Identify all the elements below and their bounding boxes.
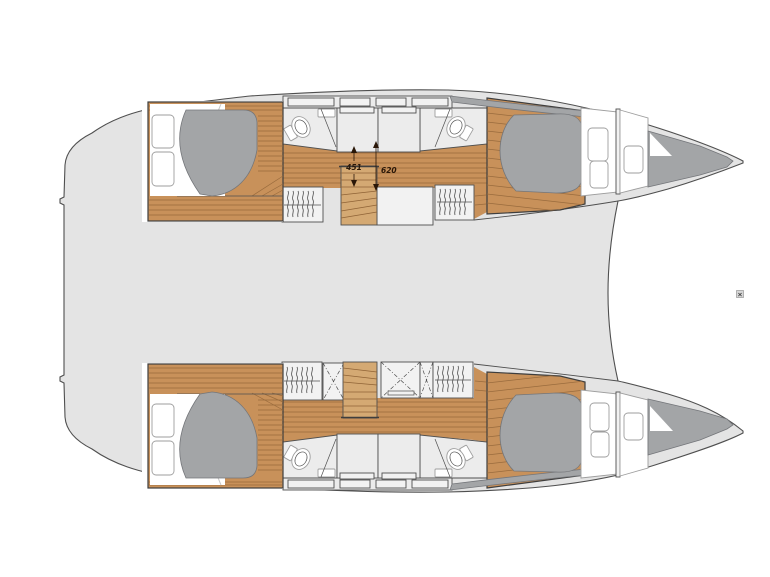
wardrobe-bottom-right bbox=[433, 362, 473, 398]
shower-top-right bbox=[378, 108, 420, 152]
bottom-hull bbox=[142, 362, 733, 490]
sink-bottom-left bbox=[318, 469, 335, 477]
shower-door-bottom-left bbox=[340, 473, 374, 479]
floorplan-svg: 451 620 bbox=[0, 0, 770, 577]
crossed-storage-box-small bbox=[323, 363, 344, 400]
shower-top-left bbox=[337, 108, 378, 152]
hull-window bbox=[590, 403, 609, 431]
bed-mattress bbox=[500, 114, 582, 193]
pillow bbox=[152, 152, 174, 186]
hull-window bbox=[624, 413, 643, 440]
dimension-label-451: 451 bbox=[346, 163, 362, 172]
bulkhead bbox=[616, 392, 620, 477]
pillow bbox=[152, 404, 174, 437]
hull-window bbox=[591, 432, 609, 457]
stairs-bottom bbox=[341, 362, 379, 418]
shower-bottom-left bbox=[337, 434, 378, 478]
bulkhead bbox=[616, 109, 620, 194]
pillow bbox=[152, 441, 174, 475]
shower-door-top-left bbox=[340, 107, 374, 113]
stairs-top bbox=[339, 166, 379, 225]
shower-door-top-right bbox=[382, 107, 416, 113]
storage-box-top bbox=[377, 187, 433, 225]
bed-mattress bbox=[500, 393, 582, 472]
artifact-mark-glyph: × bbox=[737, 291, 742, 299]
shower-door-bottom-right bbox=[382, 473, 416, 479]
pillow bbox=[152, 115, 174, 148]
hull-window bbox=[590, 161, 608, 188]
top-hull: 451 620 bbox=[142, 96, 733, 225]
dimension-label-620: 620 bbox=[381, 166, 397, 175]
hull-window bbox=[624, 146, 643, 173]
artifact-mark: × bbox=[737, 291, 744, 299]
shower-bottom-right bbox=[378, 434, 420, 478]
wardrobe-bottom-left bbox=[282, 362, 322, 400]
hull-window bbox=[588, 128, 608, 161]
aft-cabin-bottom bbox=[142, 363, 283, 489]
sink-top-left bbox=[318, 109, 335, 117]
wardrobe-top-left bbox=[282, 187, 323, 222]
crossed-storage-box-large bbox=[381, 362, 433, 398]
wardrobe-top-right bbox=[435, 185, 474, 220]
catamaran-layout-plan: 451 620 bbox=[0, 0, 770, 577]
aft-cabin-top bbox=[142, 101, 283, 222]
